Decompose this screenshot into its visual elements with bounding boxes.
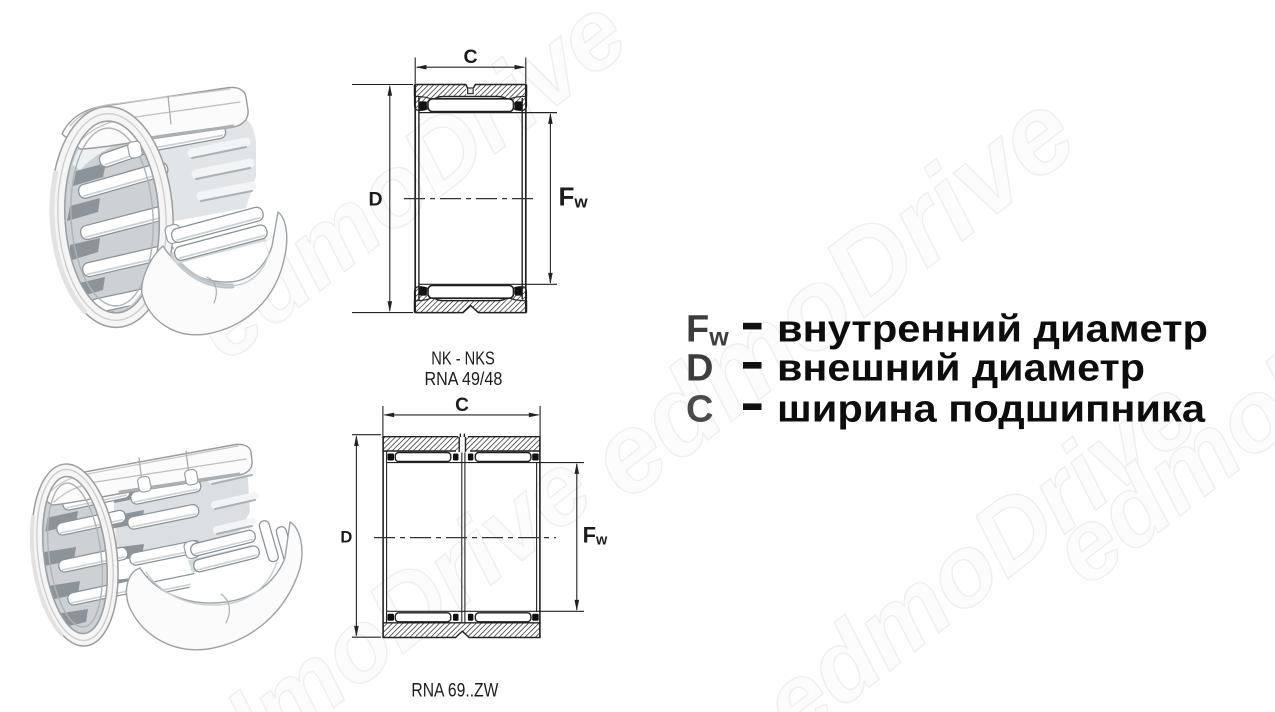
svg-text:RNA 49/48: RNA 49/48 bbox=[425, 368, 503, 389]
svg-text:C: C bbox=[463, 46, 477, 68]
svg-text:D: D bbox=[340, 529, 352, 547]
svg-text:C: C bbox=[455, 395, 469, 416]
svg-text:ширина подшипника: ширина подшипника bbox=[777, 389, 1206, 431]
svg-text:Fw: Fw bbox=[583, 523, 608, 549]
svg-text:внутренний диаметр: внутренний диаметр bbox=[777, 308, 1208, 350]
svg-text:внешний диаметр: внешний диаметр bbox=[777, 347, 1145, 389]
svg-text:NK - NKS: NK - NKS bbox=[431, 348, 495, 369]
svg-text:D: D bbox=[368, 189, 382, 211]
svg-text:Fw: Fw bbox=[559, 182, 589, 212]
svg-text:C: C bbox=[686, 389, 713, 431]
svg-text:RNA 69..ZW: RNA 69..ZW bbox=[411, 681, 498, 702]
svg-text:D: D bbox=[686, 347, 713, 389]
svg-text:edmoDrive: edmoDrive bbox=[565, 67, 1098, 522]
